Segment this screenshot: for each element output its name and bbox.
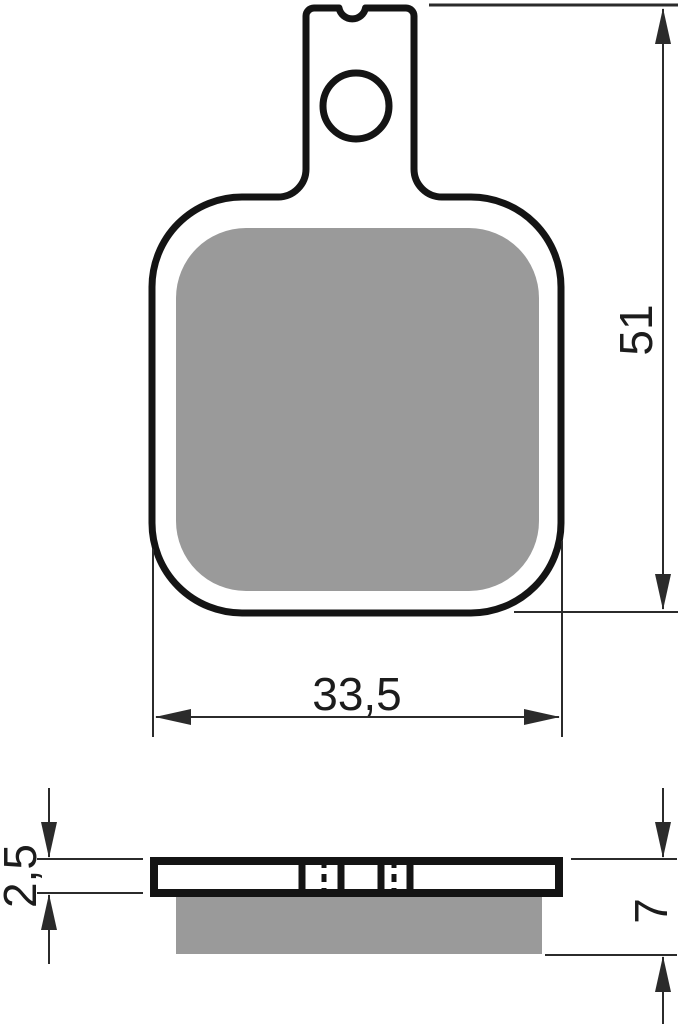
total-dim-label: 7 xyxy=(625,898,677,924)
width-dim-label: 33,5 xyxy=(312,668,402,720)
width-arrow-left-icon xyxy=(155,709,191,725)
width-arrow-right-icon xyxy=(524,709,560,725)
total-arrow-bottom-icon xyxy=(655,956,671,992)
brake-pad-drawing: 51 33,5 xyxy=(0,0,681,1024)
front-view xyxy=(152,8,561,613)
friction-material-front xyxy=(176,228,539,591)
side-view xyxy=(154,858,559,954)
height-arrow-bottom-icon xyxy=(655,574,671,610)
total-arrow-top-icon xyxy=(655,822,671,858)
technical-drawing-canvas: 51 33,5 xyxy=(0,0,681,1024)
friction-material-side xyxy=(176,897,542,954)
backplate-dim-label: 2,5 xyxy=(0,844,46,908)
mounting-hole-icon xyxy=(323,73,389,139)
backplate-thickness-dimension: 2,5 xyxy=(0,788,143,964)
total-thickness-dimension: 7 xyxy=(545,788,677,1024)
height-arrow-top-icon xyxy=(655,8,671,44)
backplate-side xyxy=(154,861,559,893)
height-dim-label: 51 xyxy=(610,304,662,355)
